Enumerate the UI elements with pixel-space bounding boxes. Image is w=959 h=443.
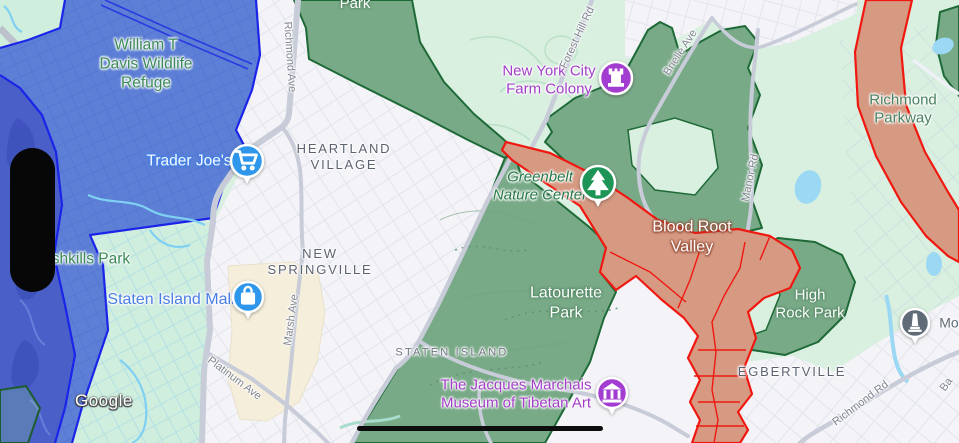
- home-indicator[interactable]: [357, 426, 603, 431]
- redaction-pill: [10, 148, 55, 292]
- farm-colony-pin[interactable]: [597, 59, 635, 102]
- cart-icon: [228, 142, 266, 189]
- map[interactable]: William T Davis Wildlife RefugeRichmond …: [0, 0, 959, 443]
- moravian-label-label[interactable]: Mo: [939, 314, 958, 331]
- heartland-village-label: HEARTLAND VILLAGE: [297, 141, 392, 173]
- obelisk-icon: [898, 306, 932, 349]
- google-watermark: Google: [75, 391, 133, 412]
- egbertville-label: EGBERTVILLE: [738, 364, 846, 380]
- trader-joes-label[interactable]: Trader Joe's: [146, 153, 231, 172]
- blood-root-valley-label: Blood Root Valley: [652, 217, 731, 256]
- trader-joes-pin[interactable]: [228, 142, 266, 194]
- tree-icon: [578, 163, 618, 212]
- mall-pin[interactable]: [230, 279, 266, 329]
- jacques-marchais-museum-label[interactable]: The Jacques Marchais Museum of Tibetan A…: [441, 377, 592, 414]
- new-springville-label: NEW SPRINGVILLE: [267, 246, 372, 278]
- greenbelt-nature-center-label[interactable]: Greenbelt Nature Center: [493, 169, 587, 206]
- museum-pin[interactable]: [594, 375, 630, 425]
- new-york-city-farm-colony-label[interactable]: New York City Farm Colony: [502, 63, 595, 100]
- moravian-pin[interactable]: [898, 306, 932, 354]
- bag-icon: [230, 279, 266, 324]
- high-rock-park-label: High Rock Park: [775, 287, 844, 324]
- museum-icon: [594, 375, 630, 420]
- richmond-parkway-label: Richmond Parkway: [869, 92, 937, 129]
- william-t-davis-wildlife-refuge-label: William T Davis Wildlife Refuge: [99, 37, 192, 94]
- castle-icon: [597, 59, 635, 97]
- staten-island-mall-label[interactable]: Staten Island Mall: [107, 290, 234, 310]
- greenbelt-pin[interactable]: [578, 163, 618, 217]
- park-top-label: Park: [340, 0, 371, 13]
- shkills-park-label: shkills Park: [52, 251, 130, 270]
- latourette-park-label: Latourette Park: [530, 283, 602, 322]
- staten-island-label: STATEN ISLAND: [395, 346, 508, 359]
